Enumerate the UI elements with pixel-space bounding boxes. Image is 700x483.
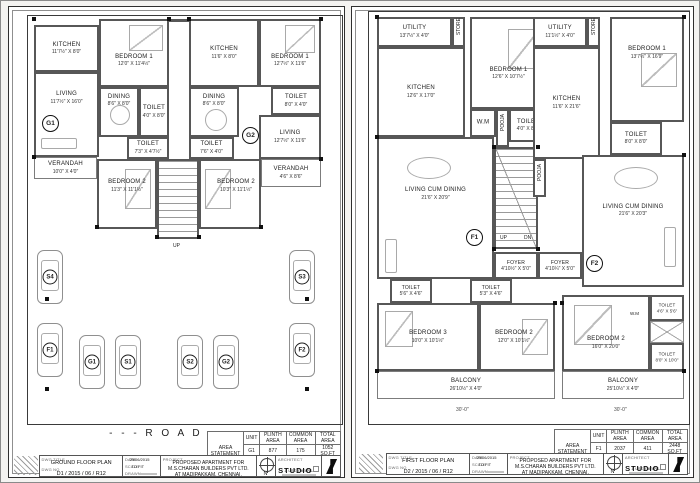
- room-kitchen-g2: KITCHEN11'6" X 8'0": [189, 19, 259, 87]
- store-label: STORE: [456, 18, 462, 35]
- dwg-title: FIRST FLOOR PLAN: [387, 458, 469, 464]
- room-label: TOILET8'0" X 10'0": [652, 351, 682, 362]
- room-living-g1: LIVING11'7½" X 16'0": [34, 72, 99, 157]
- room-label: BALCONY25'10½" X 4'0": [563, 378, 683, 392]
- drawing-canvas: KITCHEN11'7½" X 8'0" BEDROOM 112'0" X 11…: [0, 0, 700, 483]
- column-tick: [375, 369, 379, 373]
- car-stall-label: F2: [295, 343, 310, 358]
- col-header: PLINTH AREA: [260, 432, 286, 445]
- wm-label: W.M: [630, 311, 639, 316]
- room-toilet2-g1: TOILET7'3" X 4'7½": [127, 137, 169, 159]
- room-label: LIVING12'7½" X 11'6": [261, 130, 319, 144]
- room-pooja-f1: POOJA: [496, 109, 509, 147]
- room-bedroom1-g2: BEDROOM 112'7½" X 11'6": [259, 19, 321, 87]
- room-store-f2: STORE: [587, 17, 600, 47]
- bed-icon: [385, 311, 413, 347]
- architect-cell: ARCHITECT STUDIO a unit from NL: [623, 454, 669, 474]
- room-label: UTILITY13'7½" X 4'0": [379, 25, 450, 39]
- north-cell: N: [604, 454, 624, 474]
- project-line3: AT MADIPAKKAM, CHENNAI.: [508, 470, 602, 474]
- bed-icon: [205, 169, 231, 209]
- unit-label-f2: F2: [586, 255, 603, 272]
- wardrobe-icon: [650, 321, 684, 343]
- ground-floor-sheet: KITCHEN11'7½" X 8'0" BEDROOM 112'0" X 11…: [8, 6, 345, 478]
- room-dining-g1: DINING8'6" X 8'0": [99, 87, 139, 137]
- room-label: KITCHEN11'6" X 21'6": [535, 96, 598, 110]
- stair-up-label: UP: [500, 235, 507, 241]
- car-s3: S3: [289, 250, 315, 304]
- room-store-f1: STORE: [452, 17, 465, 47]
- column-tick: [492, 247, 496, 251]
- room-toilet2-g2: TOILET7'6" X 4'0": [189, 137, 234, 159]
- logo-cell: [669, 454, 687, 474]
- column-tick: [155, 235, 159, 239]
- room-kitchen-f1: KITCHEN12'6" X 17'0": [377, 47, 465, 137]
- column-tick: [32, 155, 36, 159]
- bed-icon: [125, 169, 151, 209]
- room-label: LIVING CUM DINING21'6" X 20'9": [379, 187, 492, 201]
- column-tick: [45, 297, 49, 301]
- room-living-dining-f1: LIVING CUM DINING21'6" X 20'9": [377, 137, 494, 279]
- car-stall-label: G2: [219, 355, 234, 370]
- room-label: TOILET5'6" X 4'6": [392, 285, 430, 298]
- room-dining-g2: DINING8'6" X 8'0": [189, 87, 239, 137]
- car-stall-label: S4: [43, 270, 58, 285]
- room-toilet4-f1: TOILET5'3" X 4'6": [470, 279, 512, 303]
- room-label: BALCONY26'10½" X 4'0": [378, 378, 554, 392]
- col-header: UNIT: [591, 430, 607, 443]
- project-line3: AT MADIPAKKAM, CHENNAI.: [161, 472, 255, 476]
- studio-subtitle: a unit from NL: [623, 466, 668, 471]
- room-balcony-f1: BALCONY26'10½" X 4'0": [377, 371, 555, 399]
- sofa-icon: [41, 138, 77, 149]
- illegible-text: [282, 474, 316, 476]
- north-arrow-icon: [607, 456, 621, 470]
- column-tick: [95, 225, 99, 229]
- room-label: BEDROOM 112'0" X 11'4½": [101, 54, 167, 68]
- bed-icon: [285, 25, 315, 53]
- room-label: VERANDAH10'0" X 4'0": [35, 161, 96, 175]
- illegible-text: [629, 472, 663, 474]
- room-label: TOILET5'3" X 4'6": [472, 285, 510, 298]
- scale-value: TO FIT: [478, 462, 508, 467]
- staircase: [157, 159, 199, 239]
- column-tick: [536, 145, 540, 149]
- illegible-text: [139, 473, 157, 475]
- column-tick: [319, 157, 323, 161]
- bed-icon: [574, 305, 612, 345]
- firm-logo-icon: [326, 459, 337, 474]
- dimension-label: 30'-0": [456, 407, 469, 413]
- column-tick: [32, 17, 36, 21]
- col-header: COMMON AREA: [633, 430, 662, 443]
- column-tick: [259, 225, 263, 229]
- pooja-label: POOJA: [500, 114, 506, 131]
- column-tick: [682, 153, 686, 157]
- column-tick: [492, 145, 496, 149]
- title-block: DWG TITLE FIRST FLOOR PLAN DWG NO D2 / 2…: [386, 453, 688, 475]
- pooja-label: POOJA: [537, 164, 543, 181]
- dwg-title-cell: DWG TITLE GROUND FLOOR PLAN DWG NO D1 / …: [40, 456, 123, 476]
- room-label: KITCHEN12'6" X 17'0": [379, 85, 463, 99]
- dining-table-icon: [407, 157, 451, 179]
- room-toilet3-f1: TOILET5'6" X 4'6": [390, 279, 432, 303]
- north-letter: N: [611, 469, 615, 474]
- room-label: W.M: [472, 119, 494, 127]
- room-kitchen-f2: KITCHEN11'6" X 21'6": [533, 47, 600, 159]
- room-label: KITCHEN11'7½" X 8'0": [36, 42, 97, 56]
- room-foyer-f1: FOYER4'10½" X 5'0": [494, 252, 538, 279]
- room-label: TOILET7'6" X 4'0": [191, 141, 232, 155]
- column-tick: [305, 297, 309, 301]
- car-stall-label: F1: [43, 343, 58, 358]
- car-g2: G2: [213, 335, 239, 389]
- bed-icon: [129, 25, 163, 51]
- room-bedroom1-g1: BEDROOM 112'0" X 11'4½": [99, 19, 169, 87]
- room-toilet-f2-wm: TOILET4'6" X 5'6": [650, 295, 684, 321]
- dwg-no: D1 / 2015 / 06 / R12: [40, 471, 122, 477]
- room-toilet-f2-bottom: TOILET8'0" X 10'0": [650, 343, 684, 371]
- room-label: DINING8'6" X 8'0": [191, 94, 237, 108]
- room-utility-f1: UTILITY13'7½" X 4'0": [377, 17, 452, 47]
- car-s2: S2: [177, 335, 203, 389]
- dimension-label: 30'-0": [614, 407, 627, 413]
- column-tick: [187, 17, 191, 21]
- car-stall-label: S1: [121, 355, 136, 370]
- column-tick: [375, 15, 379, 19]
- room-bedroom2-f1: BEDROOM 212'0" X 10'1½": [479, 303, 555, 371]
- column-tick: [167, 17, 171, 21]
- column-tick: [536, 247, 540, 251]
- project-cell: PROJECT PROPOSED APARTMENT FOR M.S.CHARA…: [508, 454, 603, 474]
- col-header: PLINTH AREA: [607, 430, 633, 443]
- room-label: FOYER4'10½" X 5'0": [496, 259, 536, 272]
- dwg-title-cell: DWG TITLE FIRST FLOOR PLAN DWG NO D2 / 2…: [387, 454, 470, 474]
- room-bedroom2-g1: BEDROOM 211'3" X 11'1½": [97, 159, 157, 229]
- room-label: KITCHEN11'6" X 8'0": [191, 46, 257, 60]
- car-s4: S4: [37, 250, 63, 304]
- dwg-title: GROUND FLOOR PLAN: [40, 460, 122, 466]
- sofa-icon: [385, 239, 397, 273]
- col-header: TOTAL AREA: [662, 430, 687, 443]
- studio-subtitle: a unit from NL: [276, 468, 321, 473]
- north-arrow-icon: [260, 458, 274, 472]
- north-letter: N: [264, 471, 268, 476]
- room-verandah-g2: VERANDAH4'6" X 8'6": [261, 159, 321, 187]
- date-scale-cell: DATE 29/06/2015 SCALE TO FIT DRAWN: [123, 456, 161, 476]
- room-label: TOILET4'6" X 5'6": [652, 302, 682, 313]
- project-cell: PROJECT PROPOSED APARTMENT FOR M.S.CHARA…: [161, 456, 256, 476]
- unit-label-f1: F1: [466, 229, 483, 246]
- room-bedroom2-f2: BEDROOM 216'0" X 20'0": [562, 295, 650, 371]
- room-label: TOILET8'0" X 4'0": [273, 94, 319, 108]
- sofa-icon: [664, 227, 676, 267]
- column-tick: [197, 235, 201, 239]
- column-tick: [682, 369, 686, 373]
- room-utility-f2: UTILITY11'1½" X 4'0": [533, 17, 587, 47]
- col-header: COMMON AREA: [286, 432, 315, 445]
- room-balcony-f2: BALCONY25'10½" X 4'0": [562, 371, 684, 399]
- room-foyer-f2: FOYER4'10¼" X 5'0": [538, 252, 582, 279]
- column-tick: [45, 387, 49, 391]
- car-f1: F1: [37, 323, 63, 377]
- dining-table-icon: [110, 105, 130, 125]
- unit-label-g2: G2: [242, 127, 259, 144]
- room-toilet1-g2: TOILET8'0" X 4'0": [271, 87, 321, 115]
- room-pooja-f2: POOJA: [533, 159, 546, 197]
- room-label: UTILITY11'1½" X 4'0": [535, 25, 585, 39]
- room-label: TOILET7'3" X 4'7½": [129, 141, 167, 155]
- room-label: LIVING11'7½" X 16'0": [36, 91, 97, 105]
- dwg-no: D2 / 2015 / 06 / R12: [387, 469, 469, 475]
- car-stall-label: G1: [85, 355, 100, 370]
- illegible-text: [486, 471, 504, 473]
- car-stall-label: S3: [295, 270, 310, 285]
- dining-table-icon: [614, 167, 658, 189]
- title-block: DWG TITLE GROUND FLOOR PLAN DWG NO D1 / …: [39, 455, 341, 477]
- store-label: STORE: [591, 18, 597, 35]
- col-header: TOTAL AREA: [315, 432, 340, 445]
- date-value: 29/06/2015: [129, 457, 161, 462]
- unit-label-g1: G1: [42, 115, 59, 132]
- room-living-g2: LIVING12'7½" X 11'6": [259, 115, 321, 159]
- column-tick: [319, 17, 323, 21]
- hatch-decoration: [14, 456, 38, 475]
- car-f2: F2: [289, 323, 315, 377]
- car-s1: S1: [115, 335, 141, 389]
- first-floor-sheet: UTILITY13'7½" X 4'0" STORE KITCHEN12'6" …: [351, 6, 694, 478]
- room-label: TOILET4'0" X 8'0": [141, 105, 167, 119]
- architect-cell: ARCHITECT STUDIO a unit from NL: [276, 456, 322, 476]
- date-scale-cell: DATE 29/06/2015 SCALE TO FIT DRAWN: [470, 454, 508, 474]
- column-tick: [375, 135, 379, 139]
- car-g1: G1: [79, 335, 105, 389]
- room-bedroom2-g2: BEDROOM 210'3" X 11'1½": [199, 159, 261, 229]
- stair-up-label: UP: [173, 243, 180, 249]
- car-stall-label: S2: [183, 355, 198, 370]
- room-verandah-g1: VERANDAH10'0" X 4'0": [34, 157, 97, 179]
- column-tick: [682, 15, 686, 19]
- room-label: TOILET8'0" X 8'0": [612, 132, 660, 146]
- room-toilet1-g1: TOILET4'0" X 8'0": [139, 87, 169, 137]
- bed-icon: [522, 319, 548, 355]
- bed-icon: [641, 53, 677, 87]
- room-toilet-f2-top: TOILET8'0" X 8'0": [610, 122, 662, 155]
- room-bedroom3-f1: BEDROOM 310'0" X 10'1½": [377, 303, 479, 371]
- room-label: VERANDAH4'6" X 8'6": [262, 166, 320, 180]
- scale-value: TO FIT: [131, 464, 161, 469]
- staircase: [494, 147, 538, 249]
- room-wm-f1: W.M: [470, 109, 496, 137]
- dining-table-icon: [205, 109, 227, 131]
- date-value: 29/06/2015: [476, 455, 508, 460]
- hatch-decoration: [359, 454, 383, 473]
- col-header: UNIT: [244, 432, 260, 445]
- column-tick: [305, 387, 309, 391]
- column-tick: [553, 301, 557, 305]
- room-kitchen-g1: KITCHEN11'7½" X 8'0": [34, 25, 99, 72]
- logo-cell: [322, 456, 340, 476]
- room-label: BEDROOM 112'7½" X 11'6": [261, 54, 319, 68]
- stair-dn-label: DN: [524, 235, 531, 241]
- north-cell: N: [257, 456, 277, 476]
- room-label: FOYER4'10¼" X 5'0": [540, 259, 580, 272]
- column-tick: [560, 301, 564, 305]
- room-bedroom1-f2: BEDROOM 113'7½" X 16'9": [610, 17, 684, 122]
- room-label: LIVING CUM DINING21'6" X 20'3": [584, 204, 682, 218]
- firm-logo-icon: [673, 457, 684, 472]
